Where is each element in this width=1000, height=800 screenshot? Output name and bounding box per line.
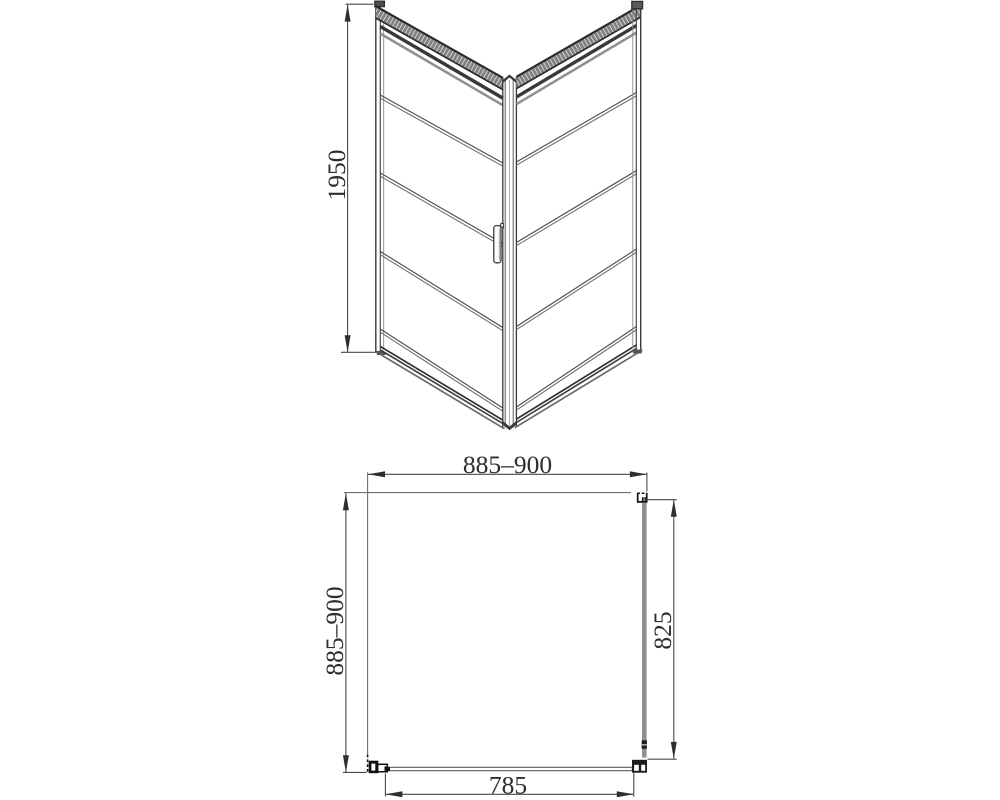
svg-text:885–900: 885–900 [463, 450, 552, 479]
svg-text:785: 785 [489, 770, 527, 799]
svg-text:885–900: 885–900 [320, 586, 349, 675]
svg-text:825: 825 [648, 611, 677, 649]
svg-text:1950: 1950 [322, 150, 351, 201]
